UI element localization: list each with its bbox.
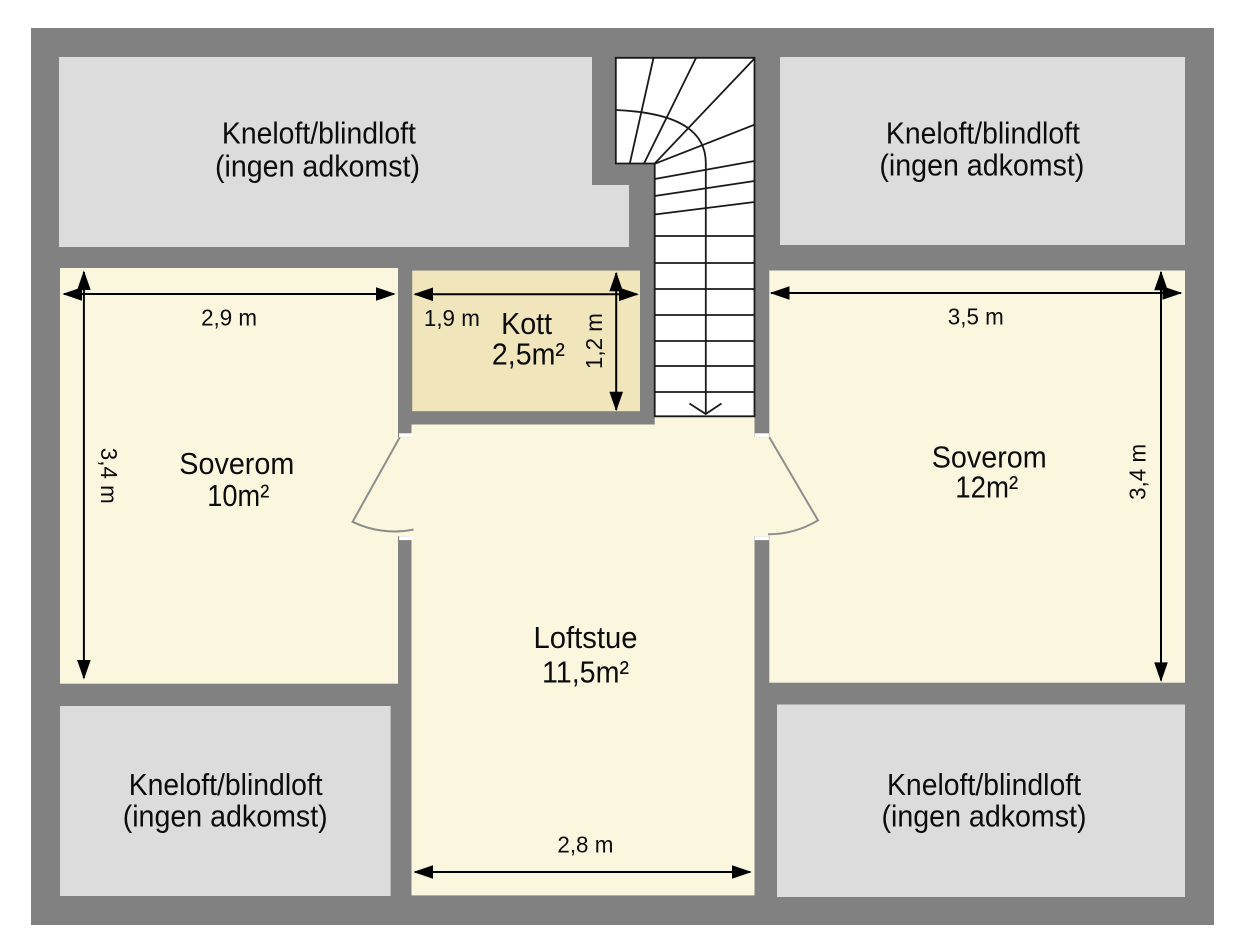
svg-text:Kneloft/blindloft: Kneloft/blindloft: [887, 767, 1081, 802]
svg-text:3,4 m: 3,4 m: [96, 448, 122, 504]
svg-text:1,2 m: 1,2 m: [581, 313, 607, 369]
svg-text:(ingen adkomst): (ingen adkomst): [882, 798, 1087, 833]
svg-text:(ingen adkomst): (ingen adkomst): [123, 798, 328, 833]
svg-text:Kneloft/blindloft: Kneloft/blindloft: [886, 115, 1080, 150]
svg-text:2,5m²: 2,5m²: [492, 337, 565, 372]
svg-text:10m²: 10m²: [207, 478, 269, 513]
svg-text:3,5 m: 3,5 m: [948, 303, 1004, 329]
svg-text:2,9 m: 2,9 m: [201, 305, 257, 331]
svg-text:1,9 m: 1,9 m: [424, 305, 480, 331]
svg-text:Loftstue: Loftstue: [534, 620, 638, 655]
svg-text:Kneloft/blindloft: Kneloft/blindloft: [222, 116, 416, 151]
svg-text:11,5m²: 11,5m²: [542, 655, 629, 690]
svg-text:Soverom: Soverom: [179, 446, 294, 481]
svg-text:2,8 m: 2,8 m: [557, 831, 613, 857]
svg-text:(ingen adkomst): (ingen adkomst): [215, 148, 420, 183]
svg-text:12m²: 12m²: [955, 469, 1018, 504]
svg-text:3,4 m: 3,4 m: [1125, 444, 1151, 500]
svg-text:Kneloft/blindloft: Kneloft/blindloft: [129, 767, 323, 802]
svg-text:(ingen adkomst): (ingen adkomst): [879, 148, 1084, 183]
